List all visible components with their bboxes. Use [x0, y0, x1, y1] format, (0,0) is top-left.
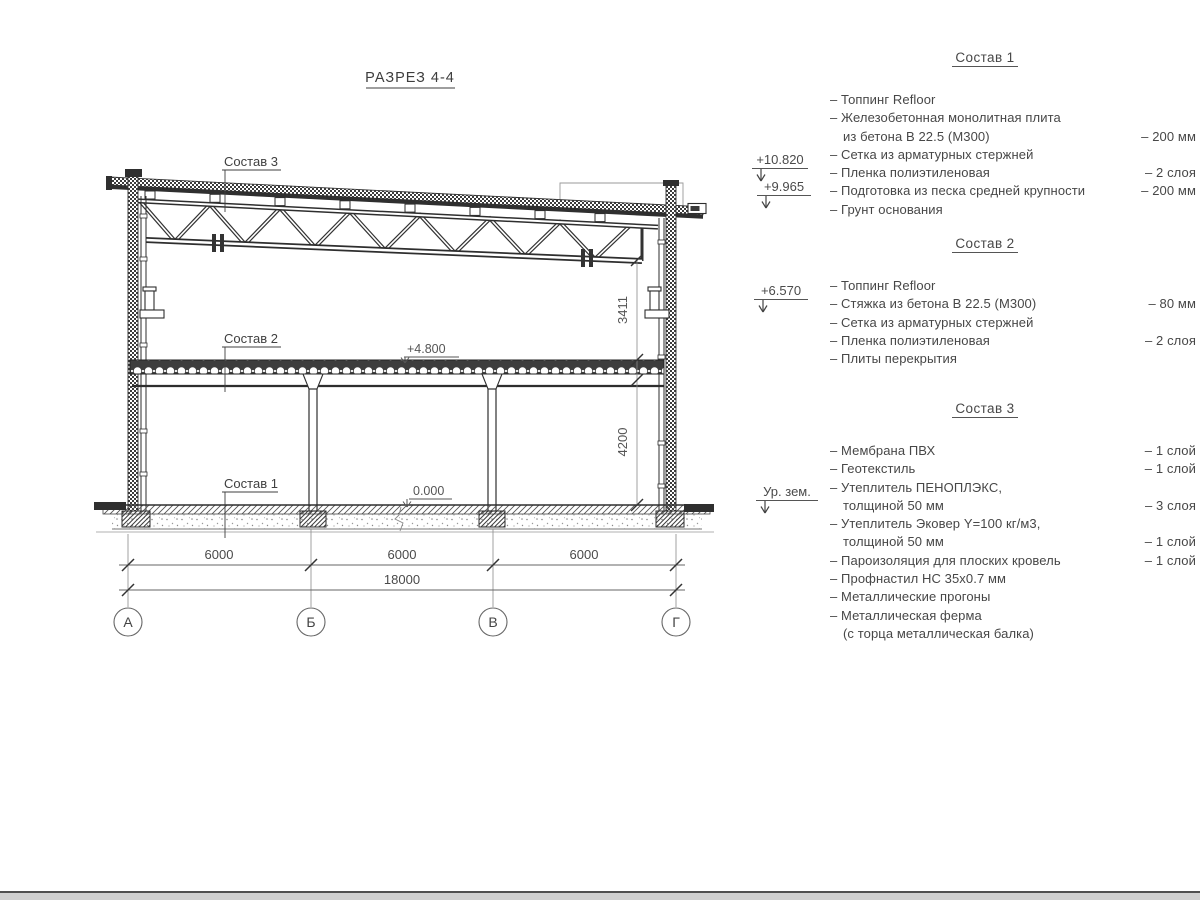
ground-slab	[94, 502, 714, 532]
dim-span-2: 6000	[388, 547, 417, 562]
dim-span-1: 6000	[205, 547, 234, 562]
spec-block-1: Состав 1 – Топпинг Refloor – Железобетон…	[830, 50, 1198, 219]
spec-row: – Утеплитель ПЕНОПЛЭКС,	[830, 479, 1198, 497]
elevation-arrow-icon	[761, 196, 773, 210]
elevation-arrow-icon	[758, 300, 770, 314]
dim-span-3: 6000	[570, 547, 599, 562]
spec-rows: – Топпинг Refloor – Стяжка из бетона В 2…	[830, 277, 1198, 368]
spec-row: – Утеплитель Эковер Y=100 кг/м3,	[830, 515, 1198, 533]
spec-row: из бетона В 22.5 (М300)– 200 мм	[830, 128, 1198, 146]
crane-bracket-right	[645, 287, 669, 318]
elevation-value: Ур. зем.	[756, 484, 818, 501]
spec-block-2: Состав 2 – Топпинг Refloor – Стяжка из б…	[830, 236, 1198, 368]
svg-text:0.000: 0.000	[413, 484, 444, 498]
roof-end-beam	[688, 204, 706, 214]
spec-row: толщиной 50 мм– 1 слой	[830, 533, 1198, 551]
drawing-sheet: РАЗРЕЗ 4-4	[0, 0, 1200, 900]
elevation-zero: 0.000	[403, 484, 452, 507]
svg-text:Состав 3: Состав 3	[224, 154, 278, 169]
elevation-marker-roof-high: +10.820	[752, 152, 808, 169]
axis-bubbles: А Б В Г	[114, 608, 690, 636]
elevation-value: +10.820	[752, 152, 808, 169]
spec-heading-row: Состав 3	[830, 401, 1140, 418]
axis-v: В	[488, 614, 497, 630]
drawing-title-text: РАЗРЕЗ 4-4	[365, 70, 455, 86]
svg-text:Состав 2: Состав 2	[224, 331, 278, 346]
spec-heading: Состав 1	[952, 50, 1017, 67]
spec-heading-row: Состав 2	[830, 236, 1140, 253]
column-v	[482, 374, 502, 511]
spec-rows: – Топпинг Refloor – Железобетонная монол…	[830, 91, 1198, 219]
spec-heading-row: Состав 1	[830, 50, 1140, 67]
spec-row: – Пароизоляция для плоских кровель– 1 сл…	[830, 552, 1198, 570]
spec-row: (с торца металлическая балка)	[830, 625, 1198, 643]
spec-row: – Железобетонная монолитная плита	[830, 109, 1198, 127]
spec-row: – Пленка полиэтиленовая– 2 слоя	[830, 332, 1198, 350]
floor-slab	[130, 360, 664, 386]
axis-g: Г	[672, 614, 680, 630]
dim-truss-height: 3411	[615, 296, 630, 324]
spec-row: – Пленка полиэтиленовая– 2 слоя	[830, 164, 1198, 182]
spec-row: толщиной 50 мм– 3 слоя	[830, 497, 1198, 515]
spec-row: – Грунт основания	[830, 201, 1198, 219]
left-wall	[125, 169, 147, 511]
svg-text:Состав 1: Состав 1	[224, 476, 278, 491]
spec-row: – Стяжка из бетона В 22.5 (М300)– 80 мм	[830, 295, 1198, 313]
axis-b: Б	[306, 614, 315, 630]
dim-story-height: 4200	[615, 428, 630, 457]
window-bottom-strip	[0, 891, 1200, 900]
elevation-marker-crane: +6.570	[754, 283, 808, 300]
column-b	[303, 374, 323, 511]
spec-row: – Плиты перекрытия	[830, 350, 1198, 368]
axis-a: А	[123, 614, 133, 630]
crane-bracket-left	[140, 287, 164, 318]
elevation-marker-roof-low: +9.965	[757, 179, 811, 196]
spec-row: – Топпинг Refloor	[830, 91, 1198, 109]
spec-rows: – Мембрана ПВХ– 1 слой – Геотекстиль– 1 …	[830, 442, 1198, 643]
horizontal-dimensions: 6000 6000 6000 18000	[119, 529, 685, 607]
spec-row: – Геотекстиль– 1 слой	[830, 460, 1198, 478]
spec-row: – Топпинг Refloor	[830, 277, 1198, 295]
spec-row: – Мембрана ПВХ– 1 слой	[830, 442, 1198, 460]
spec-row: – Сетка из арматурных стержней	[830, 314, 1198, 332]
elevation-value: +6.570	[754, 283, 808, 300]
spec-heading: Состав 2	[952, 236, 1017, 253]
spec-block-3: Состав 3 – Мембрана ПВХ– 1 слой – Геотек…	[830, 401, 1198, 643]
spec-heading: Состав 3	[952, 401, 1017, 418]
vertical-dimensions: 3411 4200	[615, 254, 643, 511]
spec-row: – Металлические прогоны	[830, 588, 1198, 606]
elevation-value: +9.965	[757, 179, 811, 196]
drawing-title: РАЗРЕЗ 4-4	[365, 70, 455, 88]
right-wall	[658, 180, 679, 511]
spec-row: – Профнастил НС 35х0.7 мм	[830, 570, 1198, 588]
dim-total: 18000	[384, 572, 420, 587]
section-drawing: РАЗРЕЗ 4-4	[0, 0, 760, 680]
spec-row: – Сетка из арматурных стержней	[830, 146, 1198, 164]
spec-row: – Подготовка из песка средней крупности–…	[830, 182, 1198, 200]
svg-text:+4.800: +4.800	[407, 342, 446, 356]
elevation-arrow-icon	[760, 501, 772, 515]
elevation-marker-ground: Ур. зем.	[756, 484, 818, 501]
spec-row: – Металлическая ферма	[830, 607, 1198, 625]
